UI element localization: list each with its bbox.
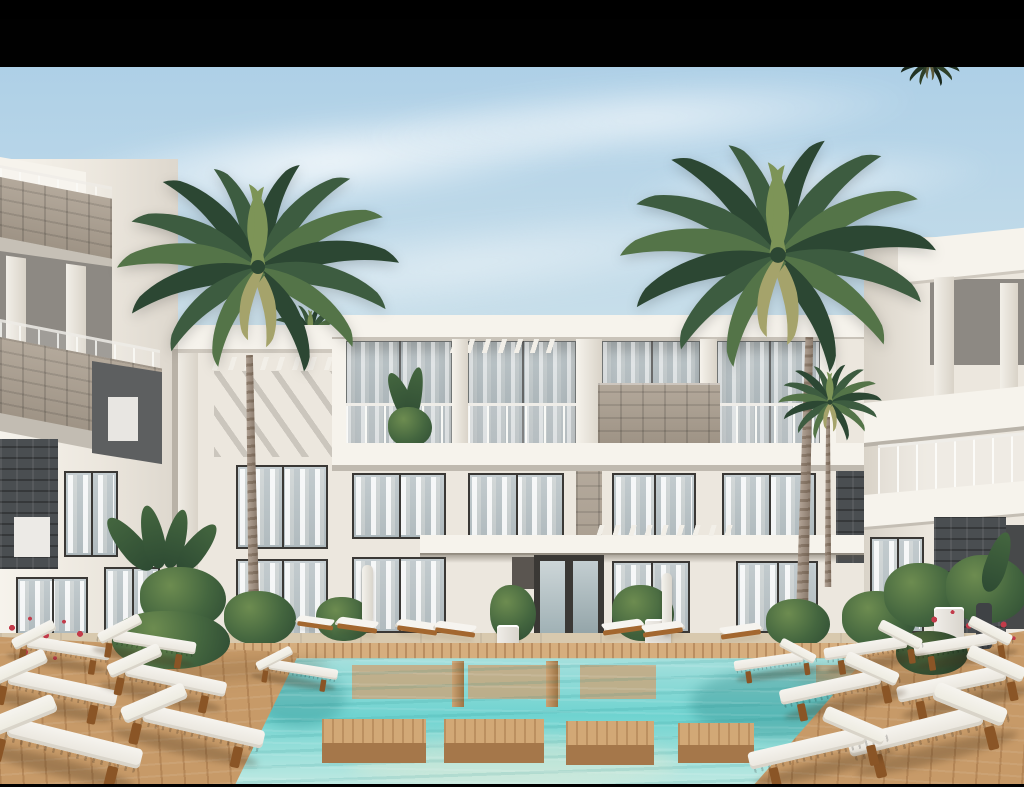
palm-tree-crown <box>628 105 928 355</box>
stepping-platform-front <box>566 745 654 765</box>
pier <box>452 339 468 449</box>
glass-balustrade <box>468 403 576 448</box>
palm-tree-crown <box>118 127 398 363</box>
entrance-door <box>534 555 604 641</box>
window <box>64 471 118 557</box>
canopy-pergola <box>596 525 734 536</box>
hanging-panel <box>108 397 138 441</box>
wall-art-panel <box>512 557 534 589</box>
resort-rendering <box>0 19 1024 787</box>
small-palm-tree <box>775 347 885 439</box>
stone-parapet <box>598 383 720 445</box>
stepping-platform <box>322 719 426 745</box>
wall-box <box>14 517 50 557</box>
stepping-platform <box>566 721 654 747</box>
window <box>468 473 564 539</box>
letterbox-top <box>0 19 1024 67</box>
stepping-platform <box>444 719 544 745</box>
window <box>352 473 446 539</box>
balcony-plant <box>388 407 432 447</box>
floor-slab <box>332 443 872 467</box>
stepping-platform-front <box>322 743 426 763</box>
pergola-shadow <box>214 371 336 457</box>
stepping-platform-front <box>444 743 544 763</box>
